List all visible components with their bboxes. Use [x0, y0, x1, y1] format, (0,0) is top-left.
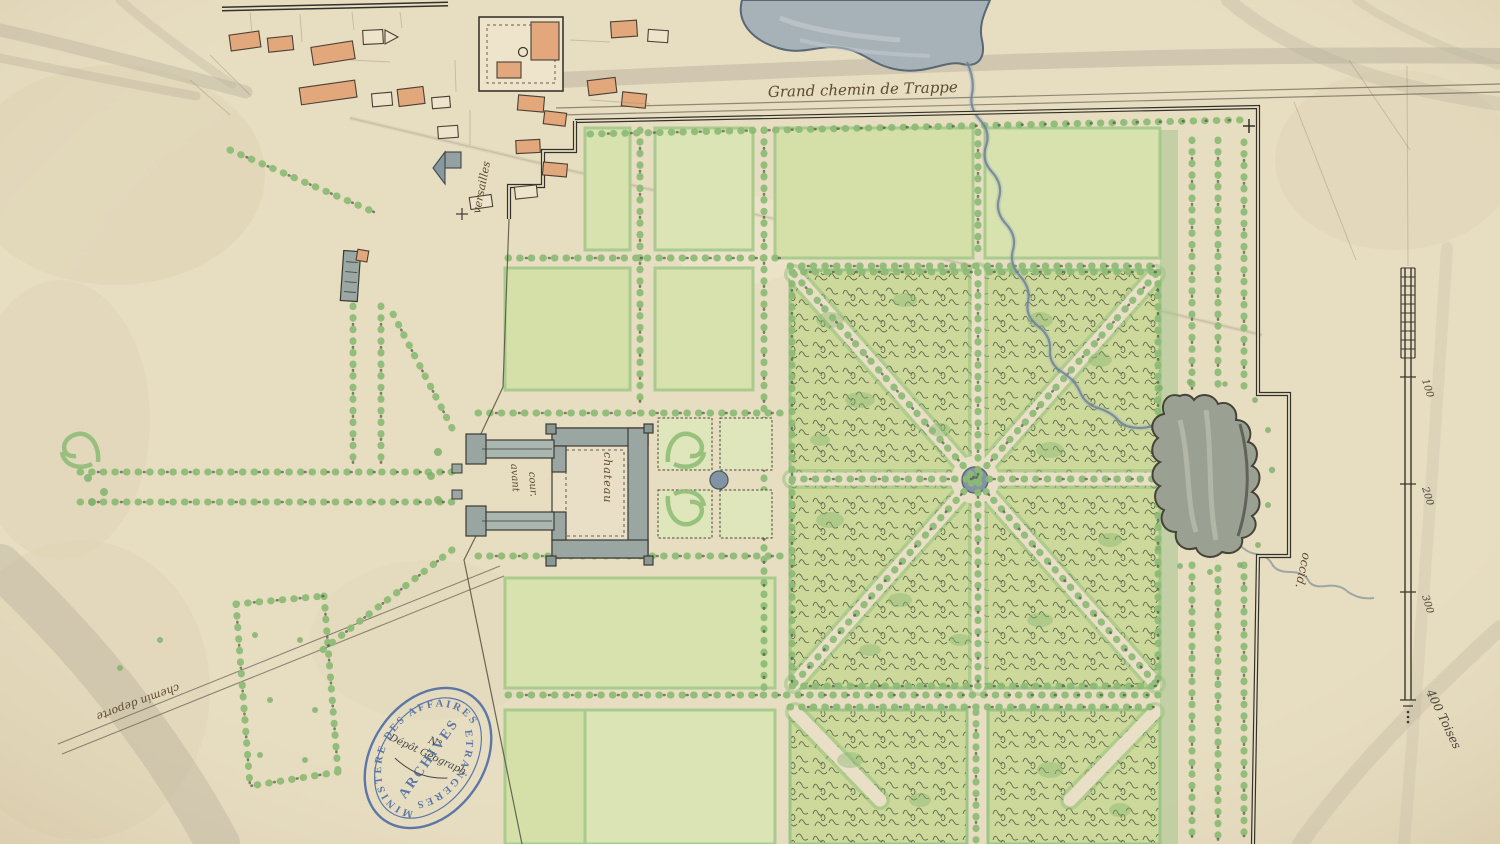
parterre-basin	[710, 471, 728, 489]
avant-cour-label-1: avant	[508, 463, 521, 493]
avant-cour-label-2: cour.	[526, 471, 539, 497]
map-canvas: 100 200 300 400 Toises Grand chemin de T…	[0, 0, 1500, 844]
chateau-label: chateau	[601, 452, 614, 503]
estate-plan-drawing: 100 200 300 400 Toises Grand chemin de T…	[0, 0, 1500, 844]
chateau-building	[546, 424, 653, 566]
walled-farm	[479, 17, 563, 91]
